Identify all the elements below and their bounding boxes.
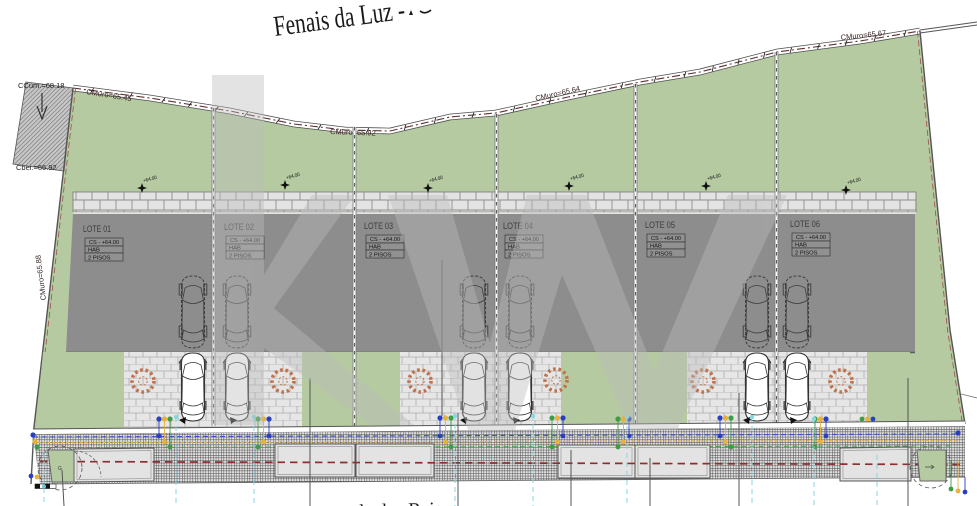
svg-text:HAB: HAB bbox=[795, 243, 807, 249]
svg-text:CS - +64.00: CS - +64.00 bbox=[796, 235, 826, 241]
svg-text:2 PISOS: 2 PISOS bbox=[369, 252, 392, 258]
svg-text:Cbei.=66.92: Cbei.=66.92 bbox=[16, 163, 57, 172]
svg-text:CS - +64.00: CS - +64.00 bbox=[651, 236, 681, 242]
svg-text:LOTE 03: LOTE 03 bbox=[364, 221, 393, 231]
svg-text:HAB: HAB bbox=[369, 245, 381, 251]
svg-text:2 PISOS: 2 PISOS bbox=[795, 250, 818, 256]
svg-text:HAB: HAB bbox=[88, 248, 100, 254]
svg-text:LOTE 05: LOTE 05 bbox=[645, 220, 675, 230]
svg-text:HAB: HAB bbox=[650, 244, 662, 250]
svg-text:LOTE 01: LOTE 01 bbox=[83, 224, 111, 234]
svg-text:CS - +64.00: CS - +64.00 bbox=[89, 240, 119, 246]
svg-text:2 PISOS: 2 PISOS bbox=[88, 255, 111, 261]
svg-text:2 PISOS: 2 PISOS bbox=[650, 251, 673, 257]
svg-text:G: G bbox=[58, 466, 62, 472]
svg-text:CS - +64.00: CS - +64.00 bbox=[370, 237, 400, 243]
svg-text:LOTE 06: LOTE 06 bbox=[790, 219, 820, 229]
svg-text:CCum.=68.18: CCum.=68.18 bbox=[18, 81, 64, 90]
